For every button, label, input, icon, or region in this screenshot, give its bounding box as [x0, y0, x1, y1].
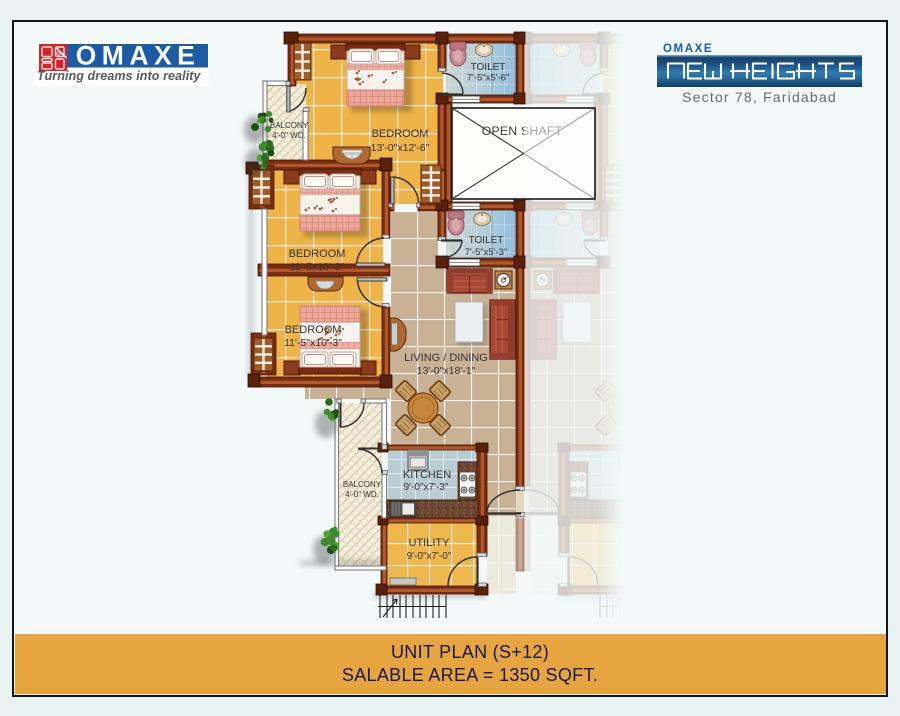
svg-text:BALCONY: BALCONY	[270, 121, 309, 130]
svg-text:OMAXE: OMAXE	[76, 41, 201, 71]
svg-text:9'-0"x7'-3": 9'-0"x7'-3"	[404, 482, 449, 493]
svg-text:9'-0"x7'-0": 9'-0"x7'-0"	[407, 551, 452, 562]
svg-text:7'-5"x5'-6": 7'-5"x5'-6"	[467, 73, 510, 84]
svg-text:13'-0"x18'-1": 13'-0"x18'-1"	[417, 365, 476, 377]
svg-text:11'-5x10'-3": 11'-5x10'-3"	[290, 261, 345, 273]
svg-text:13'-0"x12'-6": 13'-0"x12'-6"	[371, 142, 430, 154]
svg-text:11'-5"x10'-3": 11'-5"x10'-3"	[284, 337, 342, 349]
svg-text:BEDROOM: BEDROOM	[289, 248, 346, 260]
svg-text:BEDROOM: BEDROOM	[285, 324, 342, 336]
svg-text:TOILET: TOILET	[469, 235, 504, 246]
svg-text:BEDROOM: BEDROOM	[372, 128, 429, 140]
svg-text:KITCHEN: KITCHEN	[403, 469, 451, 481]
svg-text:UTILITY: UTILITY	[409, 537, 451, 549]
svg-text:TOILET: TOILET	[471, 62, 506, 73]
svg-text:7'-5"x5'-3": 7'-5"x5'-3"	[465, 247, 508, 258]
svg-text:4'-0" WD.: 4'-0" WD.	[272, 131, 306, 140]
svg-text:LIVING / DINING: LIVING / DINING	[404, 352, 488, 364]
svg-text:BALCONY: BALCONY	[343, 480, 382, 489]
svg-text:4'-0" WD.: 4'-0" WD.	[345, 490, 379, 499]
